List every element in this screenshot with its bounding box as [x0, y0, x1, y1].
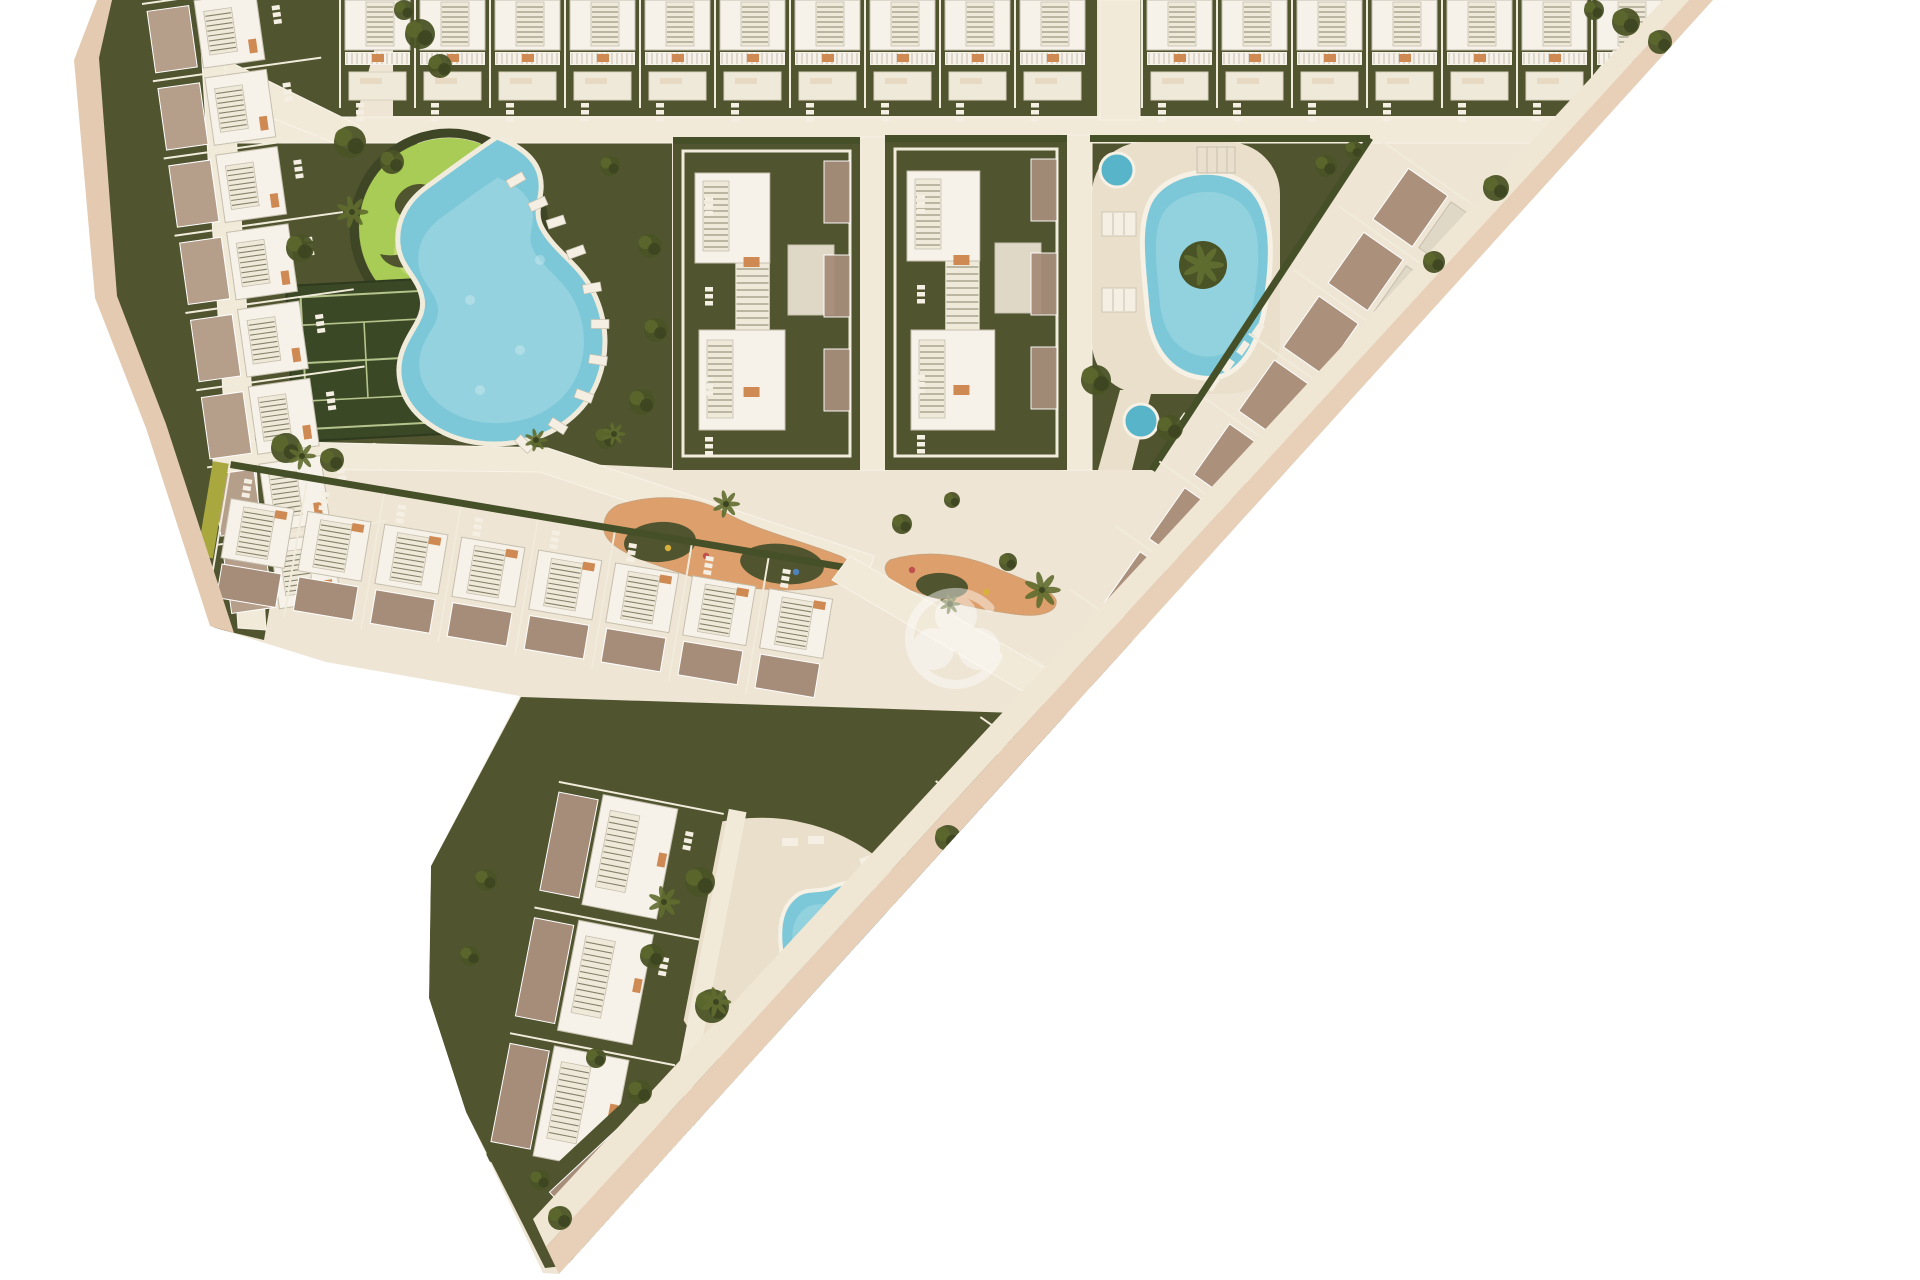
stair-tread — [1069, 911, 1089, 939]
garden-furniture — [917, 285, 925, 290]
play-equipment — [793, 569, 799, 575]
stair-tread — [1297, 595, 1317, 623]
garden-furniture — [1035, 878, 1043, 887]
stair-tread — [1216, 728, 1236, 756]
garden-furniture — [1169, 686, 1177, 695]
garden-furniture — [1437, 303, 1445, 312]
staircase — [1543, 2, 1571, 46]
tree — [685, 867, 715, 897]
lounger-accent — [980, 976, 993, 990]
tree-canopy-shadow — [1494, 185, 1507, 198]
stair-tread — [1366, 452, 1386, 480]
sun-lounger-mat — [747, 1063, 764, 1074]
tree — [1345, 141, 1363, 159]
stair-tread — [1496, 258, 1516, 286]
garden-furniture — [705, 444, 713, 449]
garden-furniture — [1533, 110, 1541, 115]
stair-tread — [1431, 403, 1451, 431]
terrace-patio — [1024, 72, 1081, 100]
terrace-bench — [1162, 78, 1184, 84]
tree-canopy-shadow — [758, 1105, 771, 1118]
tree-canopy-highlight — [748, 1097, 762, 1111]
tree-canopy-shadow — [438, 63, 450, 75]
garden-furniture — [806, 117, 814, 122]
house-roof — [1213, 626, 1297, 712]
garden-furniture — [917, 435, 925, 440]
sun-lounger-mat — [900, 905, 913, 923]
road-between-blocks-east — [1063, 135, 1092, 470]
stair-tread — [1317, 514, 1337, 542]
garden-furniture — [705, 451, 713, 456]
stair-tread — [1163, 786, 1183, 814]
garden-furniture — [1214, 622, 1222, 631]
garden-furniture — [1130, 754, 1138, 763]
garden-furniture — [917, 195, 925, 200]
tree — [548, 1206, 572, 1230]
tree — [747, 1095, 773, 1121]
stair-tread — [1411, 389, 1431, 417]
garden-furniture — [705, 377, 713, 382]
tree-canopy-shadow — [298, 245, 312, 259]
staircase — [1041, 2, 1069, 46]
garden-furniture — [1383, 110, 1391, 115]
terrace-bench — [585, 78, 607, 84]
tree — [1315, 155, 1337, 177]
garden-furniture — [881, 110, 889, 115]
tree — [530, 1170, 550, 1190]
tree-canopy-shadow — [418, 30, 433, 45]
garden-furniture — [431, 110, 439, 115]
house-roof — [989, 945, 1073, 1031]
garden-furniture — [1354, 435, 1362, 444]
stair-tread — [1500, 261, 1520, 289]
house-roof — [1302, 498, 1386, 584]
garden-furniture — [1533, 117, 1541, 122]
lounger-accent — [1070, 848, 1083, 862]
garden-furniture — [581, 117, 589, 122]
garden-furniture — [956, 110, 964, 115]
tree-canopy-shadow — [390, 159, 402, 171]
house-roof — [1123, 754, 1207, 840]
lounger-accent — [1115, 784, 1128, 798]
terrace-bench — [435, 78, 457, 84]
water-sparkle — [475, 385, 485, 395]
staircase — [1495, 257, 1553, 313]
tree-canopy — [1272, 540, 1292, 560]
stair-tread — [1244, 653, 1264, 681]
lounger-accent — [597, 54, 609, 62]
stair-tread — [1248, 656, 1268, 684]
tree-canopy-shadow — [901, 522, 911, 532]
tree-canopy — [1199, 621, 1221, 643]
garden-furniture — [1308, 103, 1316, 108]
water-sparkle — [515, 345, 525, 355]
tree-canopy-highlight — [1200, 623, 1212, 635]
tree-canopy — [990, 846, 1010, 866]
stair-tread — [1529, 281, 1549, 309]
staircase — [1405, 384, 1463, 440]
garden-furniture — [917, 292, 925, 297]
stair-tread — [1061, 905, 1081, 933]
hedge-row — [1090, 135, 1370, 142]
terrace-patio — [724, 72, 781, 100]
tree — [600, 156, 620, 176]
garden-furniture — [917, 202, 925, 207]
garden-furniture — [431, 117, 439, 122]
stair-tread — [1451, 322, 1471, 350]
terrace-bench — [660, 78, 682, 84]
tree — [1612, 8, 1640, 36]
house-roof-annex — [1061, 713, 1118, 776]
sun-lounger-mat — [782, 838, 798, 846]
garden-furniture — [656, 110, 664, 115]
stair-tread — [1321, 516, 1341, 544]
tree-canopy-shadow — [800, 1119, 811, 1130]
lounger-accent — [744, 387, 760, 397]
staircase — [1092, 832, 1150, 888]
house-roof — [1392, 370, 1476, 456]
house-roof-annex — [927, 905, 984, 968]
stair-tread — [1395, 473, 1415, 501]
garden-furniture — [656, 117, 664, 122]
garden-furniture — [956, 117, 964, 122]
stair-tread — [1167, 789, 1187, 817]
palm-tree — [869, 1013, 899, 1044]
stair-tread — [1252, 659, 1272, 687]
garden-furniture — [705, 211, 713, 216]
garden-furniture — [1458, 103, 1466, 108]
lounger-accent — [1324, 54, 1336, 62]
garden-furniture — [1163, 682, 1171, 691]
tree-canopy-shadow — [1432, 259, 1443, 270]
garden-furniture — [1029, 874, 1037, 883]
tree — [865, 1017, 895, 1047]
stair-tread — [1118, 850, 1138, 878]
stair-tread — [1346, 534, 1366, 562]
tree — [944, 492, 960, 508]
house-roof — [1436, 306, 1520, 392]
garden-furniture — [1387, 363, 1395, 372]
house-roof-annex — [1016, 777, 1073, 840]
stair-tread — [1126, 856, 1146, 884]
house-roof — [1034, 881, 1118, 967]
stair-tread — [1423, 397, 1443, 425]
tree-canopy-shadow — [698, 878, 713, 893]
stair-tread — [1077, 917, 1097, 945]
tree — [990, 846, 1010, 866]
staircase — [816, 2, 844, 46]
stair-tread — [1325, 519, 1345, 547]
stair-tread — [1024, 975, 1044, 1003]
stair-tread — [1187, 708, 1207, 736]
staircase — [1393, 2, 1421, 46]
stair-tread — [1472, 336, 1492, 364]
tree — [320, 448, 344, 472]
site-plan-rendering — [0, 0, 1920, 1280]
stair-tread — [1065, 908, 1085, 936]
garden-furniture — [356, 110, 364, 115]
staircase — [1450, 320, 1508, 376]
garden-furniture — [356, 117, 364, 122]
stair-tread — [1191, 711, 1211, 739]
sun-lounger — [747, 1063, 764, 1074]
garden-furniture — [1443, 307, 1451, 316]
staircase — [441, 2, 469, 46]
garden-furniture — [990, 942, 998, 951]
palm-trunk — [533, 437, 539, 443]
garden-furniture — [917, 389, 925, 394]
garden-furniture — [1308, 117, 1316, 122]
staircase — [1168, 2, 1196, 46]
garden-furniture — [1258, 558, 1266, 567]
staircase — [1318, 2, 1346, 46]
garden-furniture — [356, 103, 364, 108]
garden-furniture — [984, 938, 992, 947]
tree — [1199, 621, 1221, 643]
garden-furniture — [1383, 103, 1391, 108]
garden-furniture — [1264, 562, 1272, 571]
stair-tread — [1154, 781, 1174, 809]
stair-tread — [1289, 589, 1309, 617]
staircase — [516, 2, 544, 46]
stair-tread — [642, 1168, 717, 1238]
palm-trunk — [349, 209, 355, 215]
lounger-accent — [1047, 54, 1059, 62]
stair-tread — [1138, 769, 1158, 797]
play-equipment — [909, 567, 915, 573]
lounger-accent — [822, 54, 834, 62]
tree — [1272, 540, 1292, 560]
tree-canopy-shadow — [1281, 548, 1291, 558]
tree-canopy-shadow — [1168, 425, 1181, 438]
terrace-patio — [169, 160, 219, 227]
lounger-accent — [607, 1226, 625, 1243]
screenshot-root — [0, 0, 1920, 1280]
tree-canopy-shadow — [348, 138, 364, 154]
staircase — [1360, 448, 1418, 504]
tree-canopy-shadow — [469, 954, 479, 964]
stair-tread — [1342, 531, 1362, 559]
palm-trunk — [611, 431, 617, 437]
tree — [460, 946, 480, 966]
garden-furniture — [1348, 431, 1356, 440]
tree — [405, 19, 435, 49]
garden-furniture — [917, 449, 925, 454]
terrace-patio — [574, 72, 631, 100]
road-between-blocks-west — [858, 137, 887, 470]
tree-canopy-shadow — [951, 498, 959, 506]
stair-tread — [1073, 914, 1093, 942]
lounger-pair — [1102, 288, 1136, 312]
lounger-accent — [1249, 592, 1262, 606]
staircase — [366, 2, 394, 46]
stair-tread — [1016, 969, 1036, 997]
stair-tread — [1053, 900, 1073, 928]
tree — [850, 1052, 874, 1076]
stair-tread — [1484, 345, 1504, 373]
tree-canopy-shadow — [860, 1061, 872, 1073]
terrace-patio — [1376, 72, 1433, 100]
lounger-accent — [1025, 912, 1038, 926]
tree-canopy-shadow — [648, 243, 660, 255]
garden-furniture — [1309, 499, 1317, 508]
sun-lounger — [900, 905, 913, 923]
palm-frond — [878, 1027, 887, 1044]
stair-tread — [1386, 467, 1406, 495]
garden-furniture — [1458, 117, 1466, 122]
tree-canopy-shadow — [999, 854, 1009, 864]
terrace-bench — [1387, 78, 1409, 84]
stair-tread — [1480, 342, 1500, 370]
lounger-pair — [1102, 212, 1136, 236]
garden-furniture — [1085, 818, 1093, 827]
stair-tread — [1276, 580, 1296, 608]
tree — [628, 1080, 652, 1104]
stair-tread — [1362, 450, 1382, 478]
tree-canopy — [747, 1095, 773, 1121]
lounger-accent — [747, 54, 759, 62]
tree-canopy-shadow — [1593, 8, 1603, 18]
palm-frond — [883, 1025, 899, 1030]
stair-tread — [1455, 325, 1475, 353]
tree — [286, 234, 314, 262]
stair-tread — [1057, 903, 1077, 931]
garden-furniture — [1398, 371, 1406, 380]
staircase — [1271, 576, 1329, 632]
house-roof — [1481, 242, 1565, 328]
garden-furniture — [1297, 491, 1305, 500]
tree-canopy-shadow — [1353, 148, 1362, 157]
stair-tread — [1256, 661, 1276, 689]
stair-tread — [1285, 586, 1305, 614]
round-plunge-pool — [1100, 153, 1134, 187]
staircase — [966, 2, 994, 46]
garden-furniture — [705, 391, 713, 396]
lounger-accent — [618, 1238, 636, 1255]
lounger-accent — [1383, 401, 1396, 415]
tree-canopy-shadow — [403, 8, 413, 18]
garden-furniture — [705, 204, 713, 209]
stair-tread — [1081, 920, 1101, 948]
terrace-patio — [824, 255, 850, 317]
stair-tread — [1525, 278, 1545, 306]
lounger-accent — [744, 257, 760, 267]
sun-lounger — [782, 838, 798, 846]
stair-tread — [1110, 844, 1130, 872]
garden-furniture — [917, 375, 925, 380]
watermark-core — [943, 625, 969, 651]
palm-trunk — [723, 501, 729, 507]
tree — [428, 54, 452, 78]
terrace-patio — [1151, 72, 1208, 100]
garden-furniture — [705, 287, 713, 292]
terrace-patio — [649, 72, 706, 100]
tree-canopy-shadow — [1007, 560, 1016, 569]
round-plunge-pool — [1124, 404, 1158, 438]
garden-furniture — [1175, 690, 1183, 699]
garden-furniture — [656, 103, 664, 108]
terrace-patio — [158, 83, 208, 150]
staircase — [891, 2, 919, 46]
stair-tread — [1240, 650, 1260, 678]
stair-tread — [1032, 981, 1052, 1009]
tree — [791, 1111, 813, 1133]
garden-furniture — [1233, 110, 1241, 115]
terrace-patio — [499, 72, 556, 100]
terrace-patio — [147, 6, 197, 73]
garden-furniture — [996, 946, 1004, 955]
garden-furniture — [917, 209, 925, 214]
garden-furniture — [917, 299, 925, 304]
garden-furniture — [705, 294, 713, 299]
tree — [892, 514, 912, 534]
tree-canopy-shadow — [1208, 629, 1219, 640]
lounger-accent — [972, 54, 984, 62]
garden-furniture — [917, 382, 925, 387]
stair-tread — [1508, 267, 1528, 295]
terrace-patio — [1226, 72, 1283, 100]
tree-canopy — [1049, 789, 1071, 811]
stair-tread — [1378, 461, 1398, 489]
staircase — [1047, 895, 1105, 951]
stair-tread — [1012, 967, 1032, 995]
stair-tread — [1419, 394, 1439, 422]
stair-tread — [1464, 330, 1484, 358]
terrace-patio — [949, 72, 1006, 100]
tree-canopy-shadow — [558, 1215, 570, 1227]
stair-tread — [1435, 406, 1455, 434]
garden-furniture — [1074, 810, 1082, 819]
garden-furniture — [1124, 750, 1132, 759]
tree — [644, 318, 668, 342]
terrace-bench — [510, 78, 532, 84]
house-roof — [1168, 690, 1252, 776]
terrace-bench — [1537, 78, 1559, 84]
garden-furniture — [1219, 626, 1227, 635]
terrace-bench — [1462, 78, 1484, 84]
stair-tread — [1333, 525, 1353, 553]
stair-tread — [1049, 897, 1069, 925]
stair-tread — [1020, 972, 1040, 1000]
tree-canopy — [791, 1111, 813, 1133]
stair-tread — [1337, 528, 1357, 556]
stair-tread — [1207, 722, 1227, 750]
palm-frond — [869, 1025, 886, 1037]
terrace-bench — [810, 78, 832, 84]
stair-tread — [1415, 391, 1435, 419]
tree-canopy-shadow — [1094, 376, 1109, 391]
garden-furniture — [581, 110, 589, 115]
garden-furniture — [431, 103, 439, 108]
garden-furniture — [1158, 110, 1166, 115]
tree-canopy-highlight — [851, 1054, 864, 1067]
stair-tread — [1211, 725, 1231, 753]
terrace-bench — [885, 78, 907, 84]
terrace-patio — [824, 161, 850, 223]
stair-tread — [1171, 792, 1191, 820]
stair-tread — [1374, 458, 1394, 486]
house-roof-annex — [971, 841, 1028, 904]
palm-frond — [869, 1019, 886, 1031]
tree-canopy-highlight — [991, 848, 1002, 859]
garden-furniture — [1040, 882, 1048, 891]
garden-furniture — [1208, 618, 1216, 627]
play-equipment — [983, 589, 989, 595]
tree-canopy-shadow — [946, 835, 959, 848]
stair-tread — [1260, 664, 1280, 692]
tree — [1648, 30, 1672, 54]
lounger-accent — [953, 255, 969, 265]
